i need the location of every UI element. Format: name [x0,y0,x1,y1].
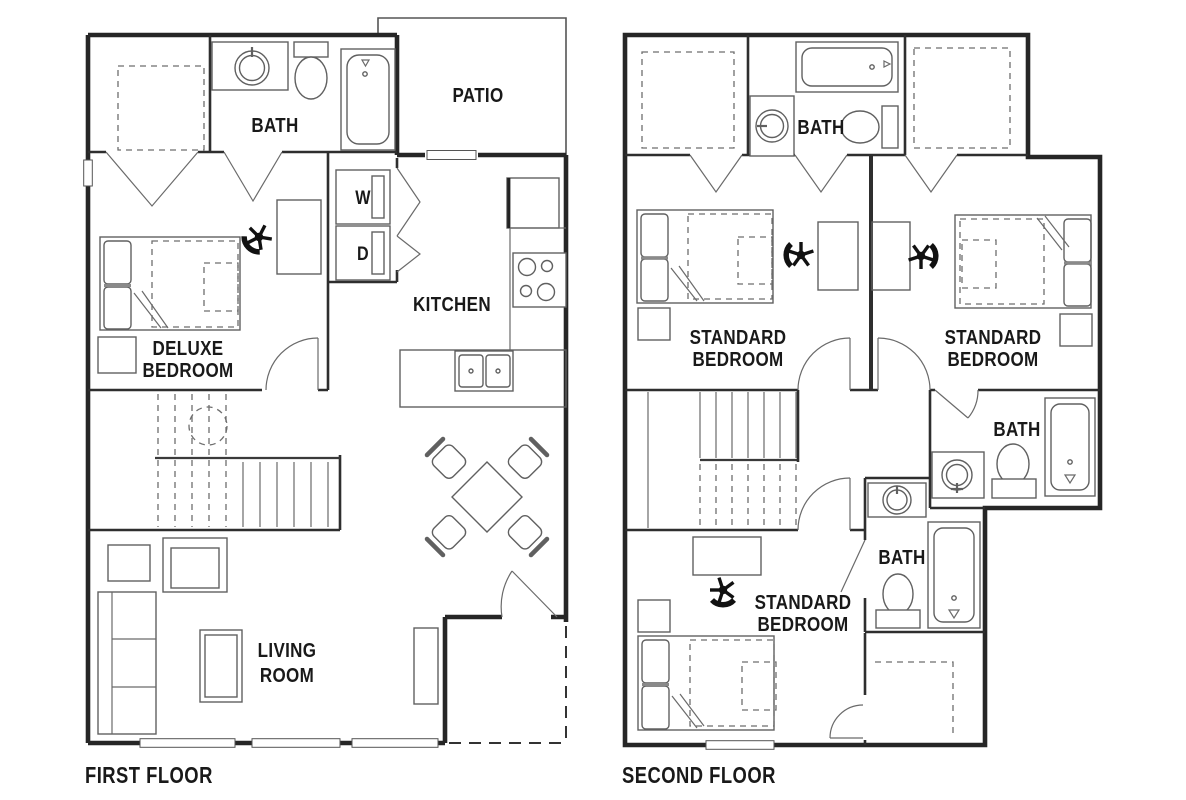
armchair [163,538,227,592]
nightstand [98,337,136,373]
stairs [648,390,798,528]
bath-door [935,390,978,418]
dining-table-set [427,439,547,555]
closet-dashed-outline [642,52,734,148]
entry-stoop-dashed [449,626,566,743]
window [252,739,340,748]
room-label-bed-left-2: BEDROOM [692,348,783,371]
window [352,739,438,748]
bath-double-door [224,152,282,201]
desk [277,200,321,274]
room-label-kitchen: KITCHEN [413,293,491,316]
nightstand [638,600,670,632]
room-label-bed-right-1: STANDARD [945,326,1042,349]
bathtub [1045,398,1095,496]
floorplan-page: BATH PATIO W D KITCHEN DELUXE BEDROOM LI… [0,0,1186,800]
bedroom-closet [830,662,953,738]
window [84,160,93,186]
closet-door [905,155,957,192]
toilet [876,574,920,628]
room-label-bath-ff: BATH [251,114,298,137]
desk-chair-icon [786,242,813,266]
desk-chair-icon [239,219,275,255]
bath-door-leaf [841,540,865,592]
bedroom-door [878,338,930,390]
room-label-patio: PATIO [452,84,503,107]
room-label-bed-bottom-2: BEDROOM [757,613,848,636]
bath-sink [212,42,288,90]
room-label-bed-right-2: BEDROOM [947,348,1038,371]
desk [693,537,761,575]
room-label-bed-bottom-1: STANDARD [755,591,852,614]
toilet [992,444,1036,498]
sofa [98,592,156,734]
closet-dashed-outline [118,66,204,150]
washer-dryer-closet [336,168,420,280]
desk [818,222,858,290]
first-floor-title: FIRST FLOOR [85,763,213,788]
dryer-label: D [357,243,369,265]
bathtub [341,49,395,150]
toilet [841,106,898,148]
bath-door [795,155,847,192]
floorplan-drawing: BATH PATIO W D KITCHEN DELUXE BEDROOM LI… [0,0,1186,800]
bath-sink [868,483,926,517]
bath-sink [750,96,794,156]
stove [513,253,566,307]
washer-label: W [355,187,371,209]
closet-double-door [106,152,198,206]
bed [638,636,776,730]
bedroom-door [798,338,850,390]
closet-door [690,155,742,192]
bathtub [928,522,980,628]
window [706,741,774,750]
desk-chair-icon [710,578,734,605]
dining-chair [506,439,547,481]
stair-column-dashed [189,407,227,445]
bathtub [796,42,898,92]
bed [637,210,773,303]
room-label-living-2: ROOM [260,664,314,687]
room-label-deluxe-2: BEDROOM [142,359,233,382]
dining-chair [427,439,468,481]
washer-door-detail [372,176,384,218]
bath-sink [932,452,984,498]
closet-dashed-outline [914,48,1010,148]
entry-door [501,571,557,617]
second-floor-title: SECOND FLOOR [622,763,776,788]
second-floor-plan: BATH STANDARD BEDROOM STANDARD BEDROOM B… [622,35,1100,789]
room-label-bed-left-1: STANDARD [690,326,787,349]
room-label-living-1: LIVING [258,639,317,662]
toilet [294,42,328,99]
bed [100,237,240,330]
kitchen-sink [455,351,513,391]
patio-sliding-door [427,151,476,160]
dining-chair [427,513,468,555]
refrigerator [507,178,559,228]
room-label-bath-mid: BATH [993,418,1040,441]
dining-chair [506,513,547,555]
nightstand [638,308,670,340]
bedroom-door [798,478,850,530]
stairs [155,394,340,527]
desk [872,222,910,290]
room-label-bath-top: BATH [797,116,844,139]
bedroom-door [266,338,318,390]
room-label-bath-lower: BATH [878,546,925,569]
room-label-deluxe-1: DELUXE [153,337,224,360]
dryer-door-detail [372,232,384,274]
window [140,739,235,748]
coffee-table [200,630,242,702]
wd-bifold-door [397,168,420,272]
first-floor-plan: BATH PATIO W D KITCHEN DELUXE BEDROOM LI… [84,18,566,789]
bed [955,215,1091,308]
desk-chair-icon [909,245,936,269]
console-table [414,628,438,704]
end-table [108,545,150,581]
nightstand [1060,314,1092,346]
dining-table [452,462,522,532]
